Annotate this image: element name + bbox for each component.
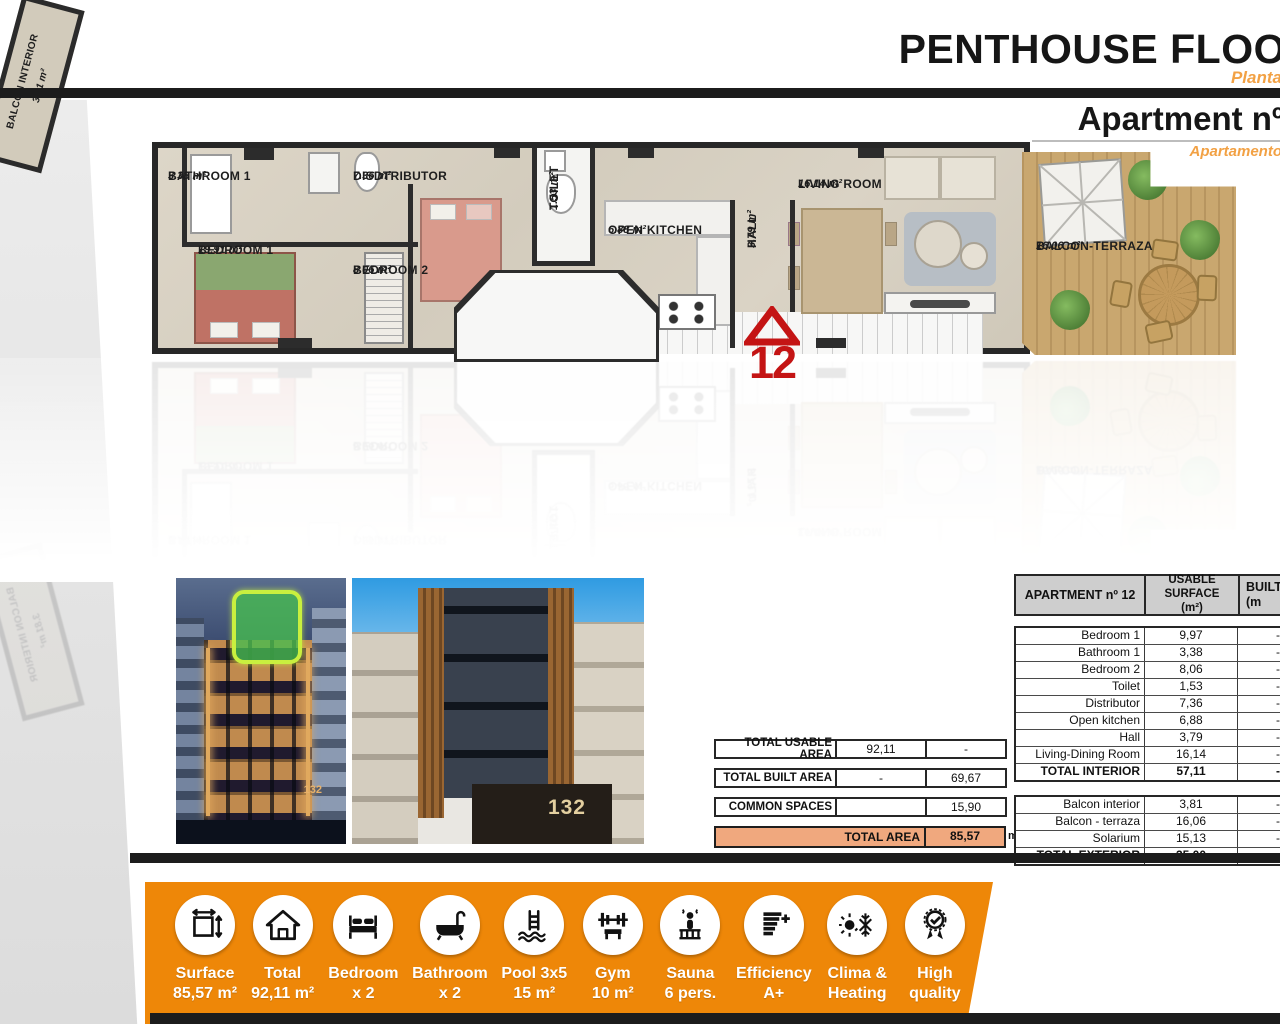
bed-2 [420,198,502,302]
table-row: Bedroom 28,06- [1016,662,1280,679]
feature-pool: Pool 3x515 m² [501,895,567,1024]
terrace-chair [1109,279,1133,308]
feature-climate: Clima &Heating [825,895,889,1024]
total-area-row: TOTAL AREA 85,57 [714,826,1006,848]
header-built-surface: BUILT(m [1238,576,1280,614]
table-row: Distributor7,36- [1016,696,1280,713]
feature-gym: Gym10 m² [581,895,645,1024]
feature-sauna: Sauna6 pers. [658,895,722,1024]
summary-usable: 92,11 [835,741,925,757]
coffee-table [914,220,962,268]
table-row: Balcon interior3,81- [1016,797,1280,814]
efficiency-icon [755,906,793,944]
apartment-marker-number: 12 [742,340,802,385]
balcon-terraza-room: BALCON-TERRAZA 16.06 m² [1022,152,1236,355]
wood-slat-frame [418,588,444,818]
summary-row: TOTAL BUILT AREA - 69,67 [714,768,1007,788]
wall [532,261,595,266]
dining-table [801,208,883,314]
kitchen-counter [604,200,732,236]
wall [182,242,418,247]
summary-label: TOTAL BUILT AREA [716,772,835,784]
bed-icon [344,906,382,944]
wall-pier [494,148,520,158]
penthouse-highlight-box [232,590,302,664]
plant [1128,160,1168,200]
bottom-black-bar [150,1013,1280,1024]
wall-pier [858,148,884,158]
wall-pier [278,338,312,348]
wall-pier [244,148,274,160]
glass-facade [444,588,548,798]
terrace-chair [1197,275,1218,302]
house-icon [264,906,302,944]
plant [1180,220,1220,260]
toilet-sink [544,150,566,172]
apartment-area-table: APARTMENT nº 12 USABLE SURFACE(m²) BUILT… [1014,574,1280,879]
stove [658,294,716,330]
shower [190,154,232,234]
table-row: Hall3,79- [1016,730,1280,747]
bathtub-icon [431,906,469,944]
table-row: Toilet1,53- [1016,679,1280,696]
neighbor-building [352,632,418,844]
terrace-chair [1151,238,1180,261]
kitchen-island [696,236,732,326]
summary-built: 15,90 [925,799,1005,815]
summary-table: TOTAL USABLE AREA 92,11 - TOTAL BUILT AR… [714,739,1044,849]
feature-efficiency: EfficiencyA+ [736,895,812,1024]
summary-usable [835,799,925,815]
entrance: 132 [472,784,612,844]
apartment-title-underline [1032,140,1280,142]
summary-row: TOTAL USABLE AREA 92,11 - [714,739,1007,759]
gym-icon [594,906,632,944]
wardrobe [364,252,404,344]
plan-reflection-fade [0,358,1280,582]
neighbor-building [176,618,204,844]
feature-bathroom: Bathroomx 2 [412,895,488,1024]
header-usable-surface: USABLE SURFACE(m²) [1144,576,1238,614]
street [176,820,346,844]
plant [1050,290,1090,330]
building-number: 132 [304,784,322,796]
balcon-interior-label: BALCON INTERIOR 3.81 m² [2,580,63,684]
dining-chair [788,222,800,246]
feature-total: Total92,11 m² [251,895,315,1024]
toilet-floor [537,148,590,261]
surface-icon [186,906,224,944]
wall [532,148,537,266]
table-row: Balcon - terraza16,06- [1016,814,1280,831]
page-title: PENTHOUSE FLOO [899,26,1280,73]
wall-pier [628,148,654,158]
quality-medal-icon [916,906,954,944]
wall [730,200,735,348]
table-row: Open kitchen6,88- [1016,713,1280,730]
feature-quality: Highquality [903,895,967,1024]
summary-built: 69,67 [925,770,1005,786]
bathroom-sink [308,152,340,194]
wall-pier [816,338,846,348]
facade-light-strip [206,648,210,816]
table-row: Bathroom 13,38- [1016,645,1280,662]
table-row-total-interior: TOTAL INTERIOR57,11- [1016,764,1280,780]
summary-built: - [925,741,1005,757]
building-photo-night: 132 [176,578,346,844]
dining-chair [788,266,800,290]
wall [790,200,795,312]
building-photo-day: 132 [352,578,644,844]
summary-label: COMMON SPACES [716,801,835,813]
top-black-bar [0,88,1280,98]
rug [904,212,996,286]
toilet-wc [546,174,576,214]
features-band: Surface85,57 m² Total92,11 m² Bedroomx 2 [145,882,993,1024]
building-number: 132 [548,796,586,820]
wall [182,148,187,247]
brochure-page: PENTHOUSE FLOO Planta Apartment nº Apart… [0,0,1280,1024]
bed-1 [194,252,296,344]
neighbor-building [312,608,346,844]
total-area-label: TOTAL AREA [716,830,924,844]
apartment-title: Apartment nº [1078,100,1280,138]
middle-black-bar [130,853,1280,863]
terrace-chair [1144,320,1174,345]
table-row: Solarium15,13- [1016,831,1280,848]
dining-chair [885,222,897,246]
parasol [1037,157,1128,248]
feature-bedroom: Bedroomx 2 [328,895,398,1024]
feature-surface: Surface85,57 m² [173,895,237,1024]
octagon-void [454,270,659,362]
pool-ladder-icon [515,906,553,944]
apartment-subtitle: Apartamento [1189,143,1280,160]
main-building [204,640,312,820]
stairwell-area [653,312,983,354]
side-table [960,242,988,270]
summary-label: TOTAL USABLE AREA [716,737,835,761]
table-row: Bedroom 19,97- [1016,628,1280,645]
header-apartment: APARTMENT nº 12 [1016,588,1144,602]
apartment-floor-plan: BATHROOM 1 3.38 m² DISDTRIBUTOR 7.36 m² … [152,142,1030,354]
total-area-value: 85,57 [924,828,1004,846]
area-table-header: APARTMENT nº 12 USABLE SURFACE(m²) BUILT… [1014,574,1280,616]
climate-icon [838,906,876,944]
summary-row: COMMON SPACES 15,90 [714,797,1007,817]
tv-unit [884,292,996,314]
wall [590,148,595,266]
interior-rows-group: Bedroom 19,97- Bathroom 13,38- Bedroom 2… [1014,626,1280,782]
page-subtitle: Planta [1231,68,1280,88]
terrace-table [1138,264,1200,326]
sauna-icon [671,906,709,944]
sofa [884,156,996,200]
wall [408,184,413,348]
table-row: Living-Dining Room16,14- [1016,747,1280,764]
bathroom-toilet [354,152,380,192]
summary-usable: - [835,770,925,786]
